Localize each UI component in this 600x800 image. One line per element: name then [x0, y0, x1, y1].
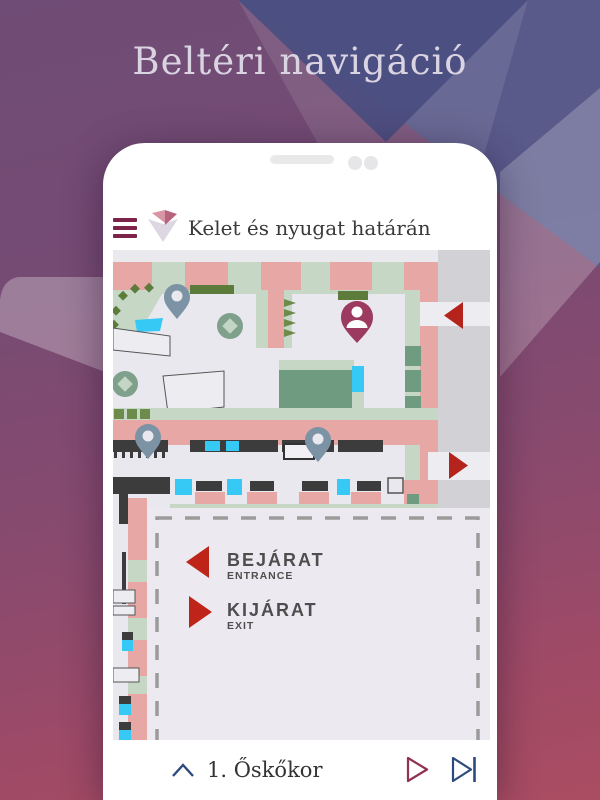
map-central-corridor	[256, 290, 296, 348]
floor-plan-map[interactable]: BEJÁRAT ENTRANCE KIJÁRAT EXIT	[113, 250, 490, 740]
museum-logo-icon	[146, 210, 180, 246]
map-legend: BEJÁRAT ENTRANCE KIJÁRAT EXIT	[147, 508, 490, 740]
app-header: Kelet és nyugat határán	[113, 205, 431, 251]
floor-plan-svg: BEJÁRAT ENTRANCE KIJÁRAT EXIT	[113, 250, 490, 740]
skip-next-icon[interactable]	[451, 755, 479, 783]
play-icon[interactable]	[406, 756, 430, 783]
chevron-up-icon[interactable]	[172, 763, 194, 778]
map-mid-corridor	[113, 408, 438, 445]
legend-entrance-sublabel: ENTRANCE	[227, 570, 293, 582]
map-upper-walls	[113, 262, 438, 294]
phone-camera-dot	[364, 156, 378, 170]
legend-exit-sublabel: EXIT	[227, 620, 254, 632]
bg-left-wing	[0, 277, 105, 372]
info-marker[interactable]	[113, 371, 138, 397]
page-title: Beltéri navigáció	[0, 40, 600, 83]
phone-mockup: Kelet és nyugat határán	[103, 143, 497, 800]
phone-camera-dot	[348, 156, 362, 170]
map-top-strip	[113, 250, 490, 263]
hamburger-menu-icon[interactable]	[113, 218, 137, 238]
app-header-title: Kelet és nyugat határán	[188, 216, 431, 240]
bottom-bar: 1. Őskőkor	[103, 740, 497, 800]
screen: { "background": { "title": "Beltéri navi…	[0, 0, 600, 800]
station-label[interactable]: 1. Őskőkor	[207, 758, 322, 782]
legend-exit-label: KIJÁRAT	[227, 599, 318, 620]
info-marker[interactable]	[217, 313, 243, 339]
phone-speaker	[270, 155, 334, 164]
legend-entrance-label: BEJÁRAT	[227, 549, 325, 570]
